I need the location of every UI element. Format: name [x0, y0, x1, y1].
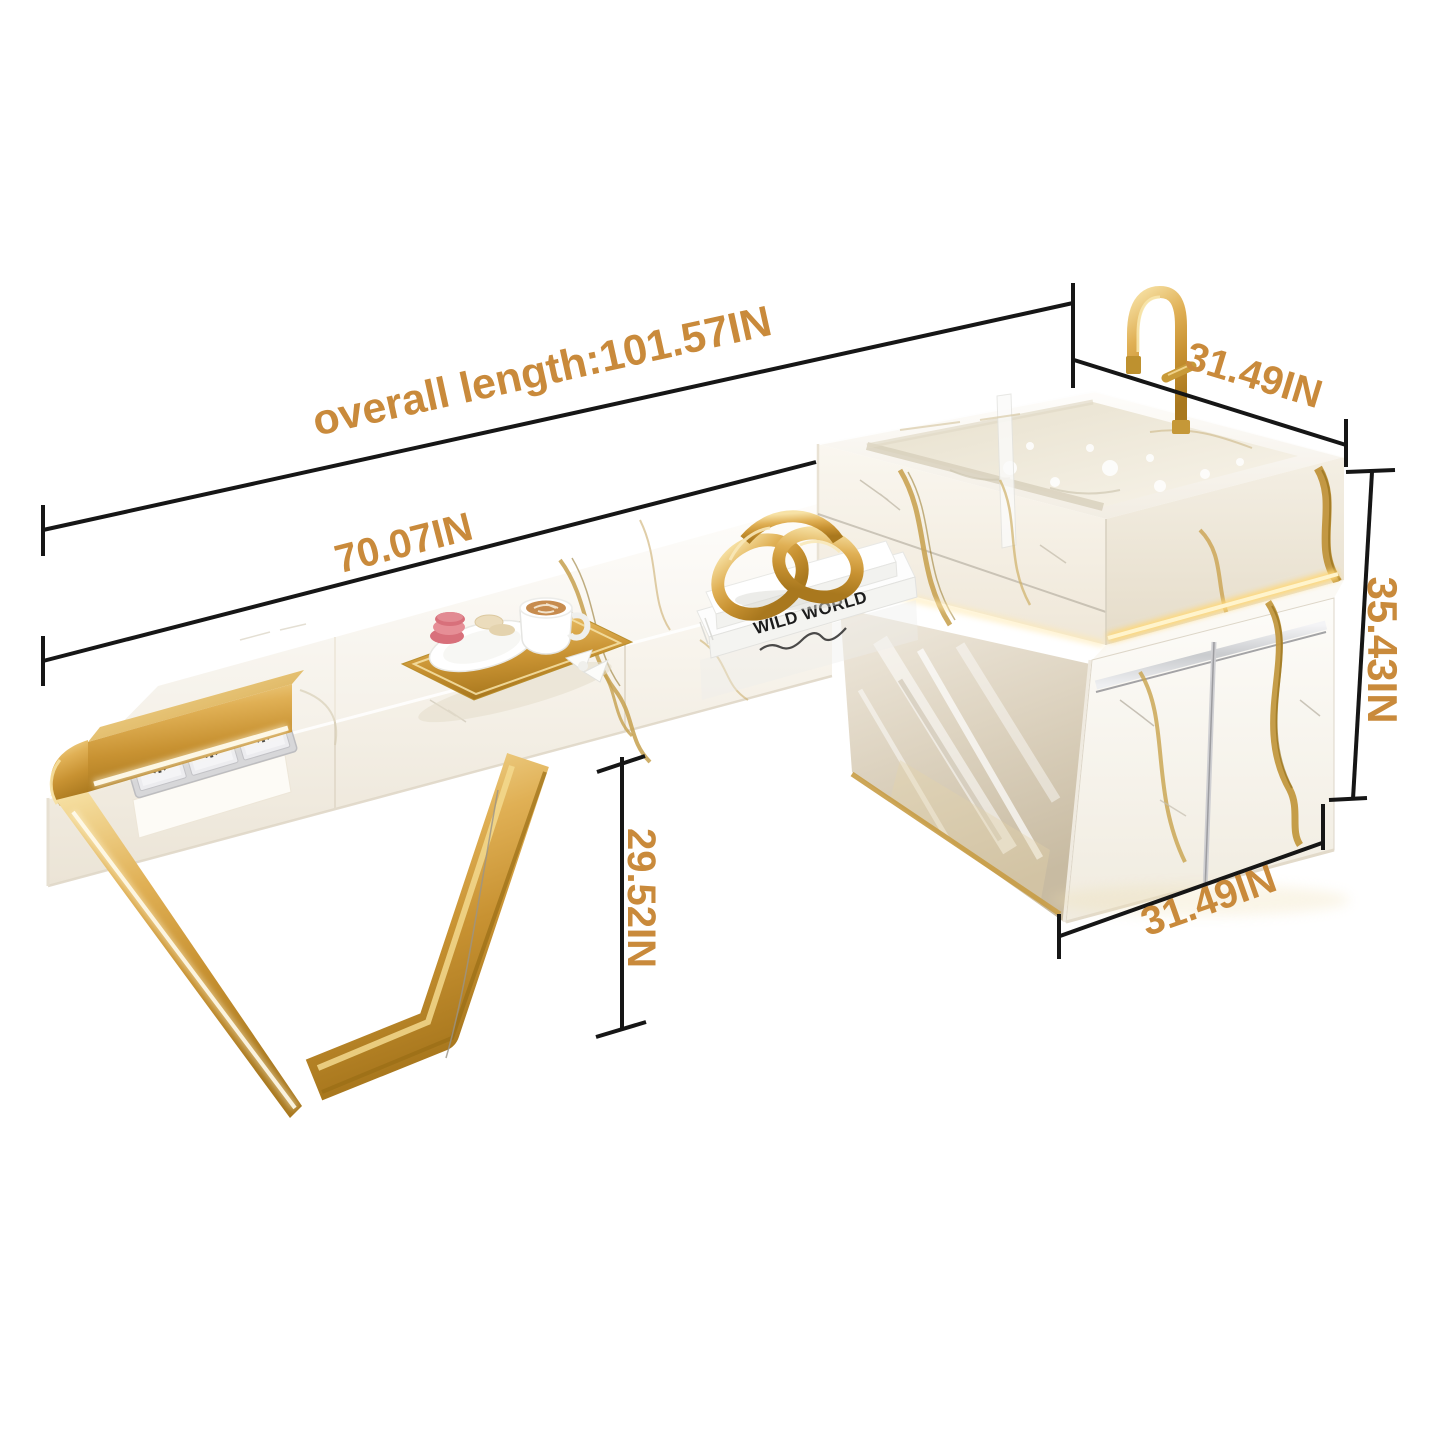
gold-towel-bar — [51, 670, 304, 1118]
product-dimension-diagram: WILD WORLD — [0, 0, 1445, 1445]
dim-overall-length-label: overall length:101.57IN — [308, 297, 776, 445]
cabinet-doors — [1064, 598, 1334, 922]
dim-unit-height-label: 35.43IN — [1359, 576, 1406, 723]
v-leg — [314, 760, 545, 1092]
dim-countertop-clearance-label: 29.52IN — [619, 828, 663, 968]
dim-sink-top-depth-label: 31.49IN — [1180, 334, 1327, 417]
faucet-spout — [1126, 356, 1141, 374]
dim-countertop-length-label: 70.07IN — [330, 505, 477, 583]
